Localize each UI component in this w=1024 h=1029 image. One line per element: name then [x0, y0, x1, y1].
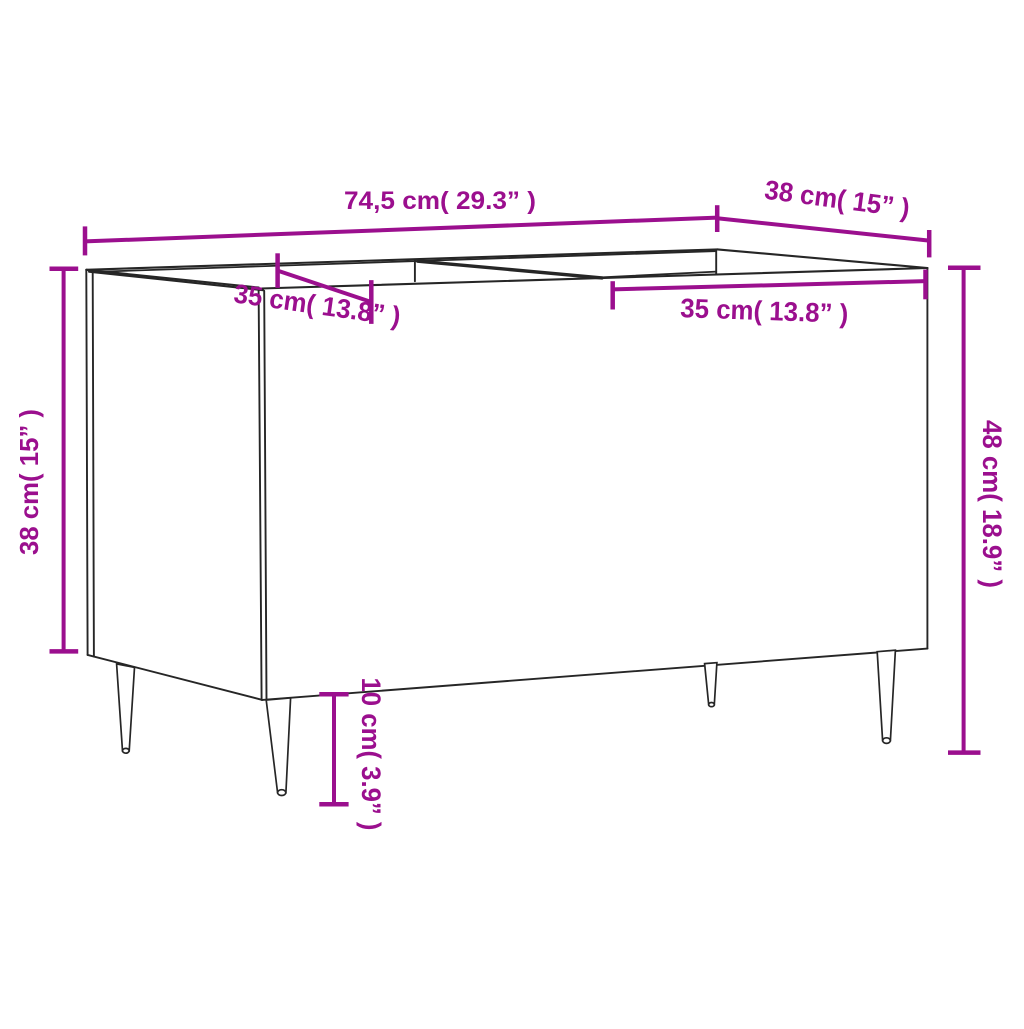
svg-text:38 cm( 15” ): 38 cm( 15” ): [14, 409, 44, 555]
svg-text:48 cm( 18.9” ): 48 cm( 18.9” ): [977, 420, 1007, 588]
svg-text:35 cm( 13.8” ): 35 cm( 13.8” ): [680, 293, 849, 329]
svg-text:74,5 cm( 29.3” ): 74,5 cm( 29.3” ): [344, 187, 536, 215]
svg-text:10 cm( 3.9” ): 10 cm( 3.9” ): [356, 678, 386, 831]
